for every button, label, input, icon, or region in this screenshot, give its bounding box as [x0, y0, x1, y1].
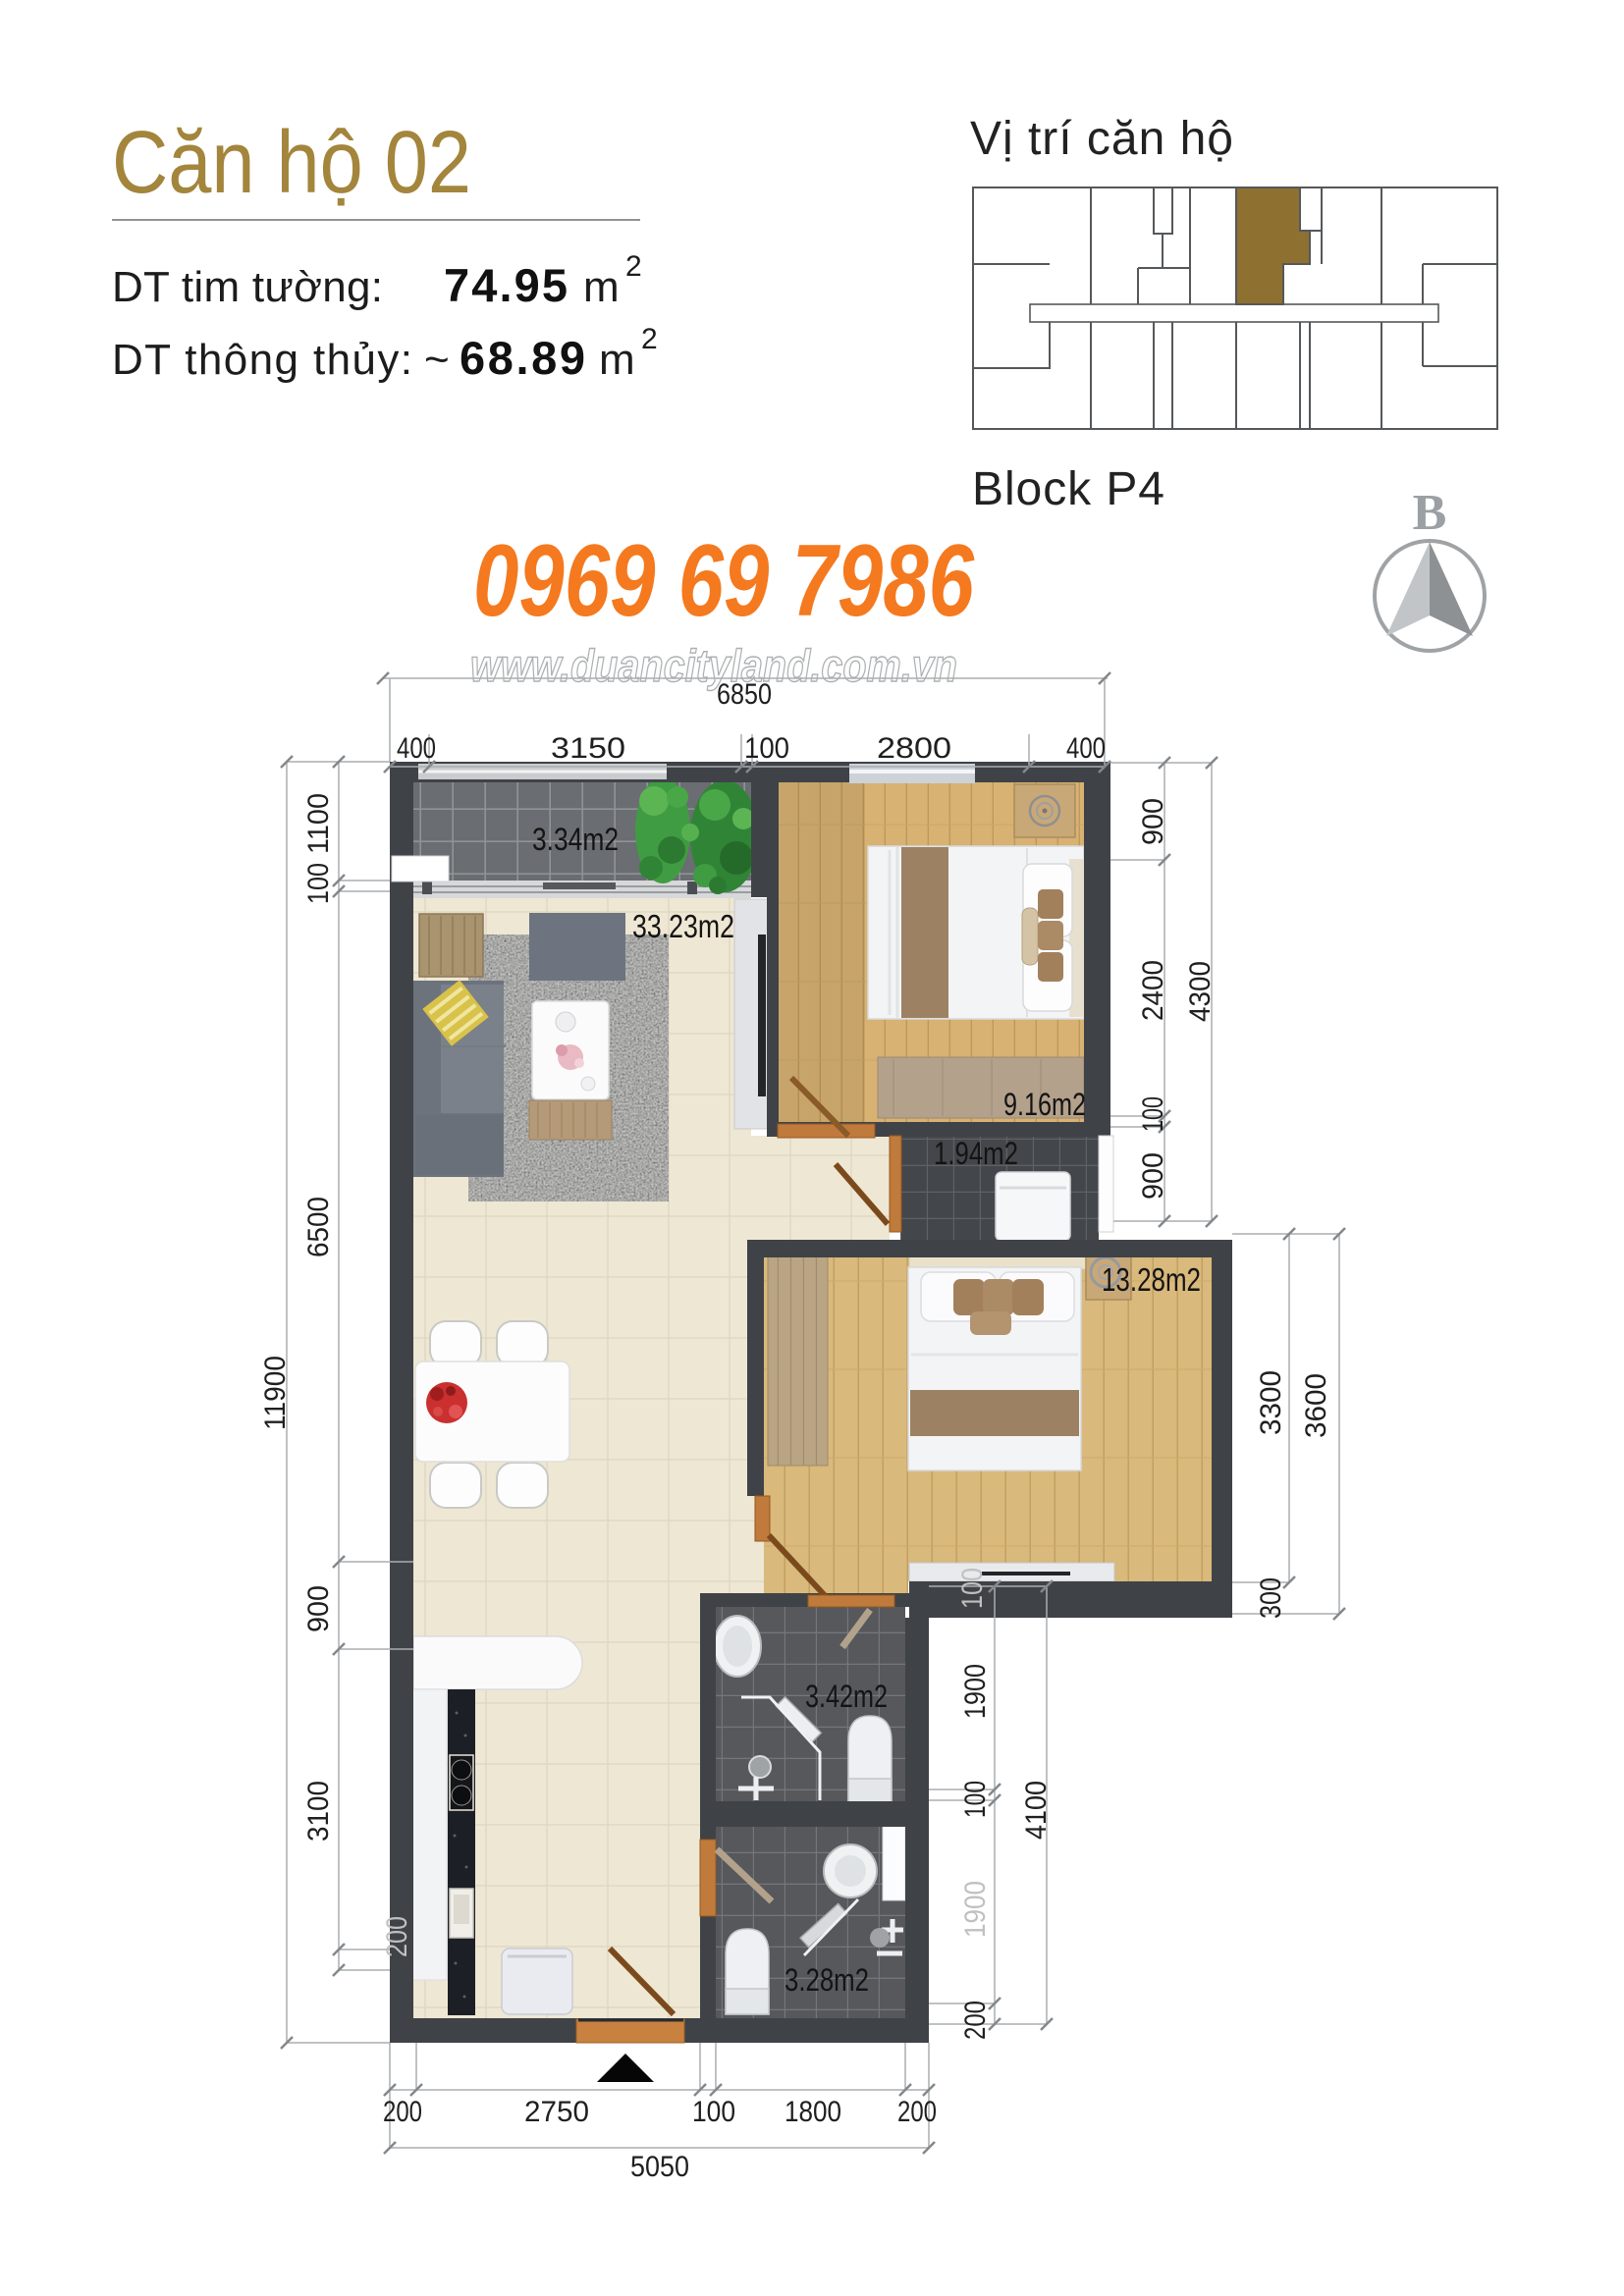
svg-text:2: 2 [641, 323, 658, 355]
svg-text:900: 900 [1137, 1152, 1169, 1200]
svg-text:2800: 2800 [877, 732, 951, 765]
svg-text:74.95: 74.95 [444, 259, 568, 311]
svg-text:1.94m2: 1.94m2 [934, 1136, 1018, 1171]
svg-text:200: 200 [959, 2001, 992, 2040]
svg-text:6850: 6850 [717, 678, 772, 711]
svg-text:100: 100 [1137, 1096, 1169, 1132]
svg-text:3100: 3100 [302, 1781, 335, 1842]
svg-text:100: 100 [302, 863, 335, 904]
svg-text:13.28m2: 13.28m2 [1102, 1261, 1201, 1298]
svg-text:11900: 11900 [259, 1356, 292, 1430]
svg-text:2400: 2400 [1137, 960, 1169, 1021]
svg-text:~: ~ [424, 336, 450, 384]
svg-text:4300: 4300 [1184, 961, 1217, 1022]
svg-text:1900: 1900 [959, 1664, 992, 1719]
svg-text:33.23m2: 33.23m2 [632, 908, 734, 944]
svg-text:Căn hộ 02: Căn hộ 02 [112, 114, 471, 212]
svg-text:2750: 2750 [524, 2096, 589, 2128]
svg-text:3150: 3150 [551, 732, 625, 765]
svg-text:200: 200 [381, 1916, 413, 1957]
svg-text:m: m [583, 263, 620, 311]
svg-text:900: 900 [1137, 798, 1169, 845]
svg-text:900: 900 [302, 1585, 335, 1632]
svg-text:0969 69 7986: 0969 69 7986 [473, 524, 975, 638]
svg-text:3.34m2: 3.34m2 [532, 822, 619, 857]
svg-text:100: 100 [959, 1781, 992, 1818]
svg-text:9.16m2: 9.16m2 [1003, 1087, 1086, 1122]
svg-text:Block P4: Block P4 [972, 463, 1164, 515]
svg-text:300: 300 [1255, 1577, 1287, 1619]
svg-text:5050: 5050 [630, 2151, 689, 2183]
svg-text:100: 100 [692, 2096, 735, 2128]
svg-text:Vị trí căn hộ: Vị trí căn hộ [970, 113, 1233, 165]
svg-text:400: 400 [397, 732, 436, 765]
svg-text:6500: 6500 [302, 1197, 335, 1257]
svg-text:200: 200 [383, 2096, 422, 2128]
svg-text:1800: 1800 [785, 2096, 841, 2128]
svg-text:400: 400 [1066, 732, 1106, 765]
svg-text:m: m [599, 336, 635, 384]
svg-text:1100: 1100 [302, 793, 335, 854]
svg-text:1900: 1900 [959, 1881, 992, 1938]
svg-text:2: 2 [625, 250, 642, 283]
svg-text:B: B [1413, 485, 1447, 541]
svg-text:3.28m2: 3.28m2 [785, 1962, 869, 1998]
svg-text:4100: 4100 [1020, 1781, 1053, 1840]
svg-text:www.duancityland.com.vn: www.duancityland.com.vn [470, 640, 957, 691]
svg-text:68.89: 68.89 [460, 332, 585, 384]
svg-text:3600: 3600 [1300, 1373, 1332, 1438]
svg-text:100: 100 [956, 1568, 989, 1609]
svg-text:200: 200 [897, 2096, 937, 2128]
svg-text:3.42m2: 3.42m2 [805, 1679, 888, 1714]
svg-text:3300: 3300 [1255, 1370, 1287, 1435]
svg-text:DT tim tường:: DT tim tường: [112, 263, 383, 311]
svg-text:100: 100 [744, 732, 789, 765]
svg-text:DT thông thủy:: DT thông thủy: [112, 336, 412, 384]
